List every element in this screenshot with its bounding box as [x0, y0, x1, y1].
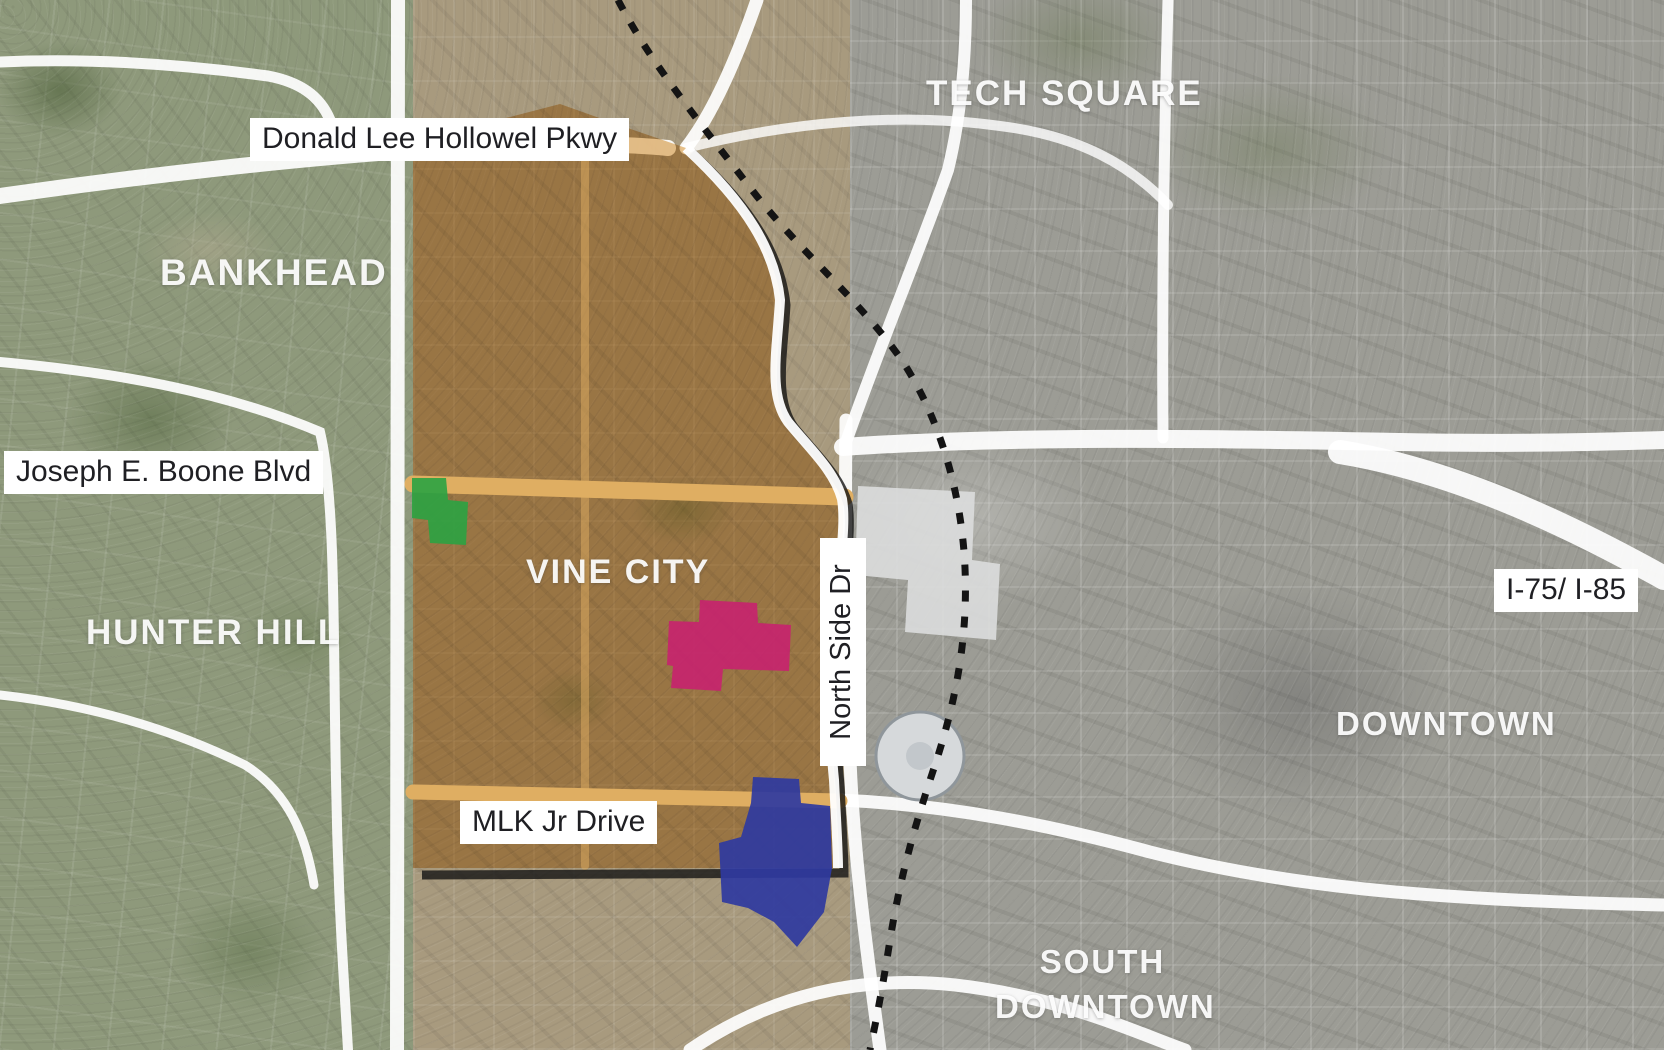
stadium-roof-hub	[906, 742, 934, 770]
road-west-curve-b	[0, 695, 314, 885]
area-label-south-downtown-line1: SOUTH	[995, 940, 1210, 985]
road-label-north-side-dr: North Side Dr	[820, 538, 866, 766]
road-label-i75-i85: I-75/ I-85	[1494, 569, 1638, 612]
road-joseph-boone-mid	[413, 484, 845, 497]
landmark-buildings	[855, 486, 1000, 800]
area-label-downtown: DOWNTOWN	[1336, 705, 1557, 743]
pink-parcel-overlay	[667, 600, 791, 691]
road-rail-parallel	[845, 0, 966, 445]
green-parcel-overlay	[412, 478, 468, 545]
road-east-vertical	[1163, 0, 1168, 438]
boundary-shadow-line	[422, 153, 849, 875]
railroad-dotted-line	[618, 0, 965, 1050]
area-label-south-downtown: SOUTH DOWNTOWN	[995, 940, 1210, 1029]
area-label-vine-city: VINE CITY	[526, 553, 710, 592]
blue-parcel-overlay	[719, 777, 832, 947]
area-label-south-downtown-line2: DOWNTOWN	[995, 985, 1210, 1030]
basemap-urban-east	[850, 0, 1664, 1050]
satellite-map: BANKHEAD HUNTER HILL VINE CITY TECH SQUA…	[0, 0, 1664, 1050]
road-mlk-mid	[413, 792, 840, 801]
stadium-building	[876, 712, 964, 800]
area-label-bankhead: BANKHEAD	[160, 252, 388, 294]
district-roads	[413, 150, 845, 866]
vine-city-boundary-overlay	[413, 104, 843, 868]
area-label-hunter-hill: HUNTER HILL	[86, 613, 341, 653]
road-north-connector	[686, 0, 757, 148]
road-northwest	[0, 61, 330, 120]
congress-center-building	[855, 486, 1000, 640]
road-label-joseph-e-boone-blvd: Joseph E. Boone Blvd	[4, 451, 323, 494]
road-label-donald-lee-hollowel-pkwy: Donald Lee Hollowel Pkwy	[250, 118, 629, 161]
road-northeast-branch	[686, 120, 1168, 205]
road-mlk-east	[840, 800, 1664, 905]
road-label-mlk-jr-drive: MLK Jr Drive	[460, 801, 657, 844]
road-east-horizontal	[843, 439, 1664, 447]
area-label-tech-square: TECH SQUARE	[926, 74, 1203, 114]
highway-i75-i85	[1340, 452, 1664, 578]
